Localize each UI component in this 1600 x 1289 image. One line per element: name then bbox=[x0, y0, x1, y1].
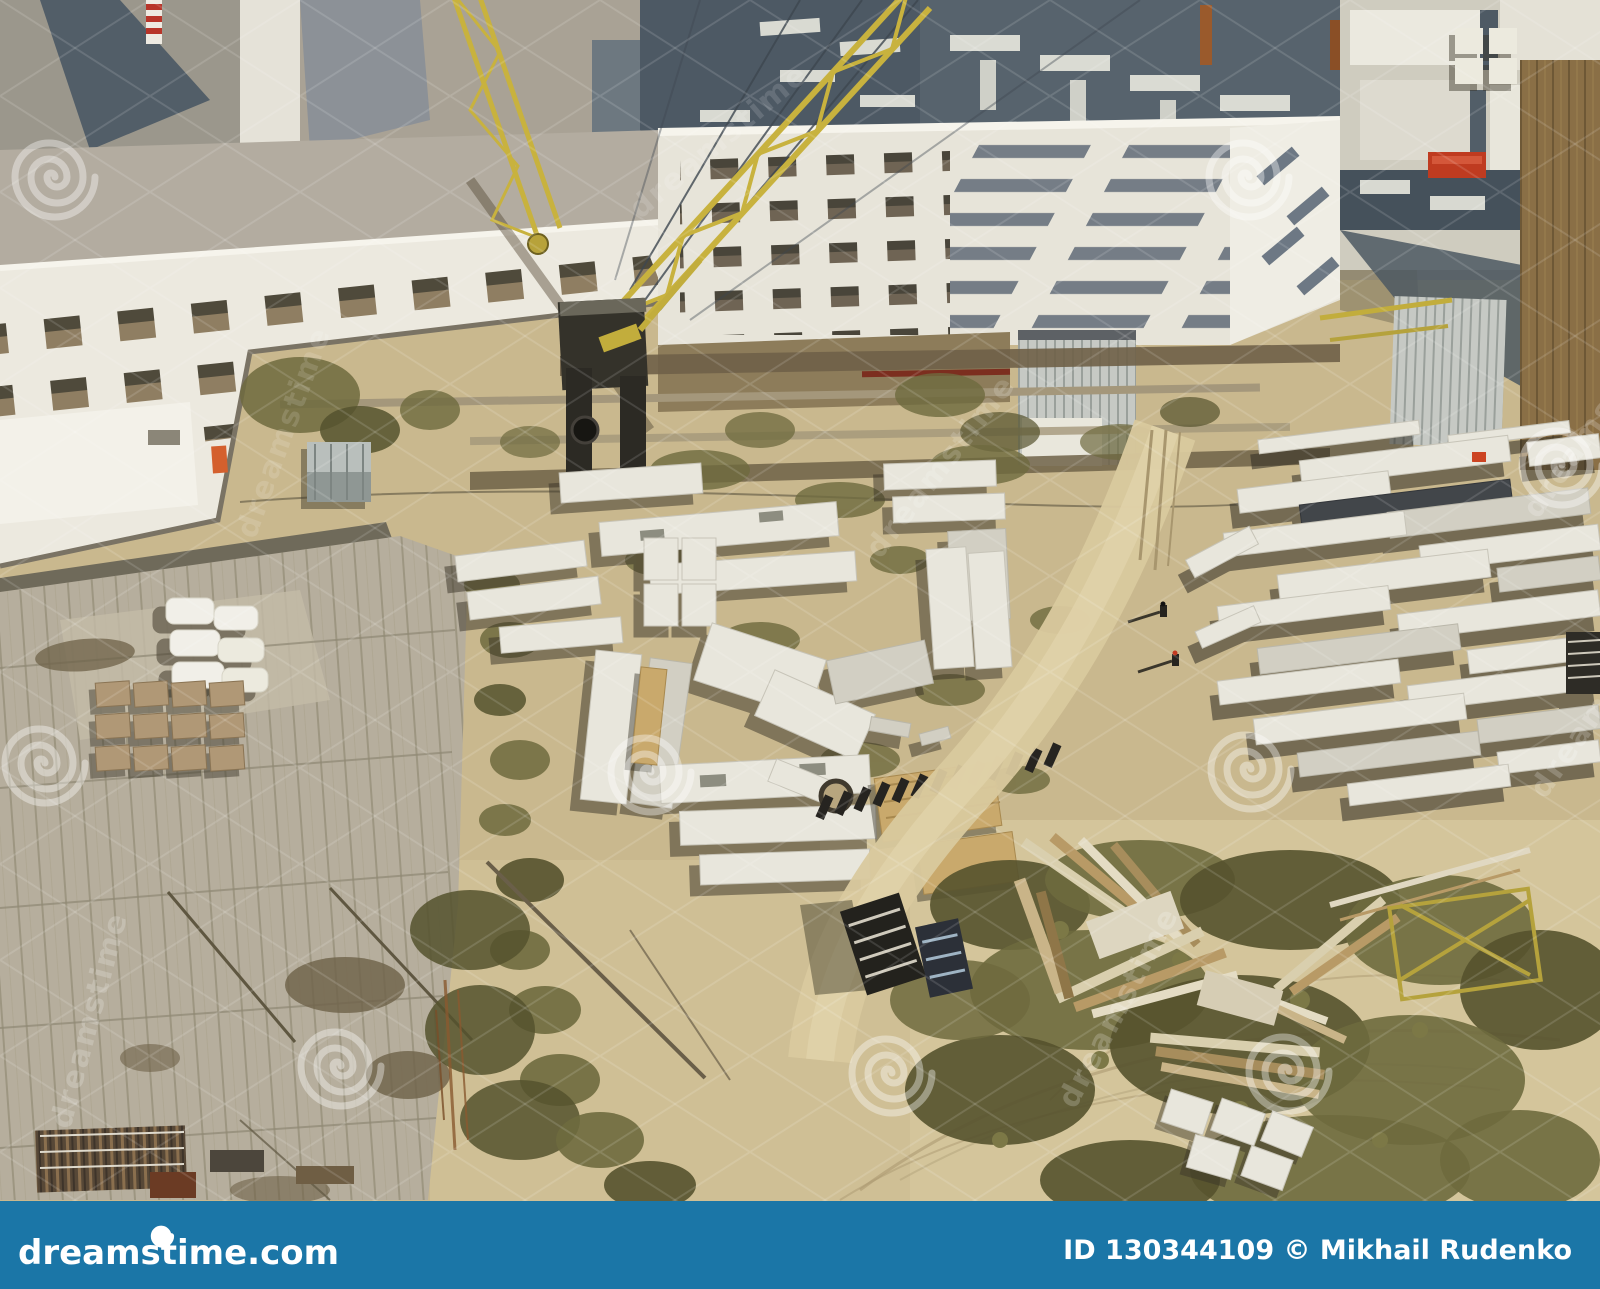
watermark-overlay: dreamstime dreamstime dreamstime dreamst… bbox=[0, 0, 1600, 1201]
footer-bar: dreamstime.com ID 130344109 © Mikhail Ru… bbox=[0, 1201, 1600, 1289]
construction-site-photo: dreamstime dreamstime dreamstime dreamst… bbox=[0, 0, 1600, 1289]
credit-text: ID 130344109 © Mikhail Rudenko bbox=[1063, 1235, 1572, 1266]
stock-photo-page: dreamstime dreamstime dreamstime dreamst… bbox=[0, 0, 1600, 1289]
brand-spiral-icon bbox=[154, 1229, 172, 1245]
watermark-lattice bbox=[0, 0, 1600, 1201]
brand-logo: dreamstime.com bbox=[18, 1233, 339, 1273]
